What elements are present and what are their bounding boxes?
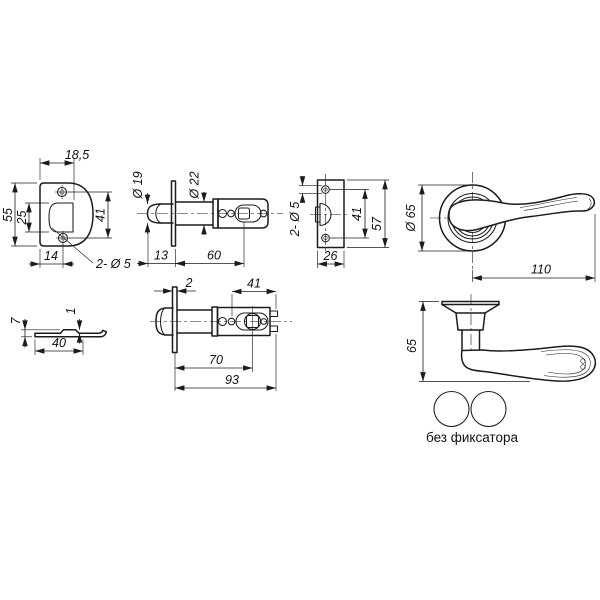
dim-rose-diameter: Ø 65 (404, 204, 418, 232)
dim-lip-height: 7 (9, 316, 23, 324)
callout-faceplate-holes: 2- Ø 5 (288, 202, 302, 238)
dim-bolt-length: 13 (154, 249, 168, 263)
dim-plate-length: 40 (52, 336, 66, 350)
view-latch-bolt-side: Ø 19 Ø 22 13 60 (131, 171, 283, 267)
dim-opening-height: 25 (15, 211, 29, 226)
dim-bolt-diameter: Ø 19 (131, 171, 145, 199)
dim-side-height: 65 (405, 339, 419, 353)
fork-prong-bottom (270, 326, 278, 332)
screw-hole-top (55, 185, 69, 199)
technical-drawing-sheet: 18,5 55 25 41 14 2- Ø 5 (0, 0, 600, 600)
view-handle-front: Ø 65 110 (404, 172, 595, 282)
lever-front-outline (449, 194, 594, 231)
strike-plate-opening (49, 203, 73, 232)
dim-plate-thickness: 2 (185, 276, 193, 290)
view-latch-bolt-top: 2 41 70 93 (150, 276, 292, 391)
drawing-canvas: 18,5 55 25 41 14 2- Ø 5 (0, 0, 600, 600)
view-latch-faceplate: 2- Ø 5 41 57 26 (288, 174, 389, 268)
dim-backset: 70 (209, 353, 223, 367)
strike-side-profile (35, 330, 106, 337)
rose-neck-side (456, 313, 485, 330)
fork-prong-top (270, 311, 278, 317)
dim-top-width: 18,5 (65, 148, 89, 162)
view-strike-plate-side: 7 1 40 (9, 308, 106, 355)
variant-circle-right (471, 392, 506, 427)
view-strike-plate-front: 18,5 55 25 41 14 2- Ø 5 (1, 148, 131, 271)
dim-total-length: 93 (225, 373, 239, 387)
dim-faceplate-hole-spacing: 41 (350, 207, 364, 221)
rose-taper-side (442, 305, 499, 314)
rose-disc-side (442, 302, 499, 305)
dim-bottom-offset: 14 (44, 249, 58, 263)
variant-circle-left (434, 392, 469, 427)
callout-holes: 2- Ø 5 (95, 257, 131, 271)
variant-indicator: без фиксатора (426, 392, 518, 446)
dim-faceplate-height: 57 (370, 216, 384, 231)
variant-caption: без фиксатора (426, 430, 518, 445)
view-handle-side: 65 (405, 294, 595, 382)
dim-faceplate-width: 26 (323, 249, 338, 263)
dim-body-length: 60 (207, 249, 221, 263)
dim-hole-spacing: 41 (94, 208, 108, 222)
dim-body-diameter: Ø 22 (188, 171, 202, 199)
dim-handle-length: 110 (531, 263, 551, 277)
lever-side-outline (462, 346, 596, 381)
latch-top-faceplate (173, 287, 178, 353)
dim-rear-length: 41 (247, 277, 261, 291)
dim-plate-height: 55 (1, 208, 15, 222)
dim-thickness: 1 (64, 308, 78, 315)
